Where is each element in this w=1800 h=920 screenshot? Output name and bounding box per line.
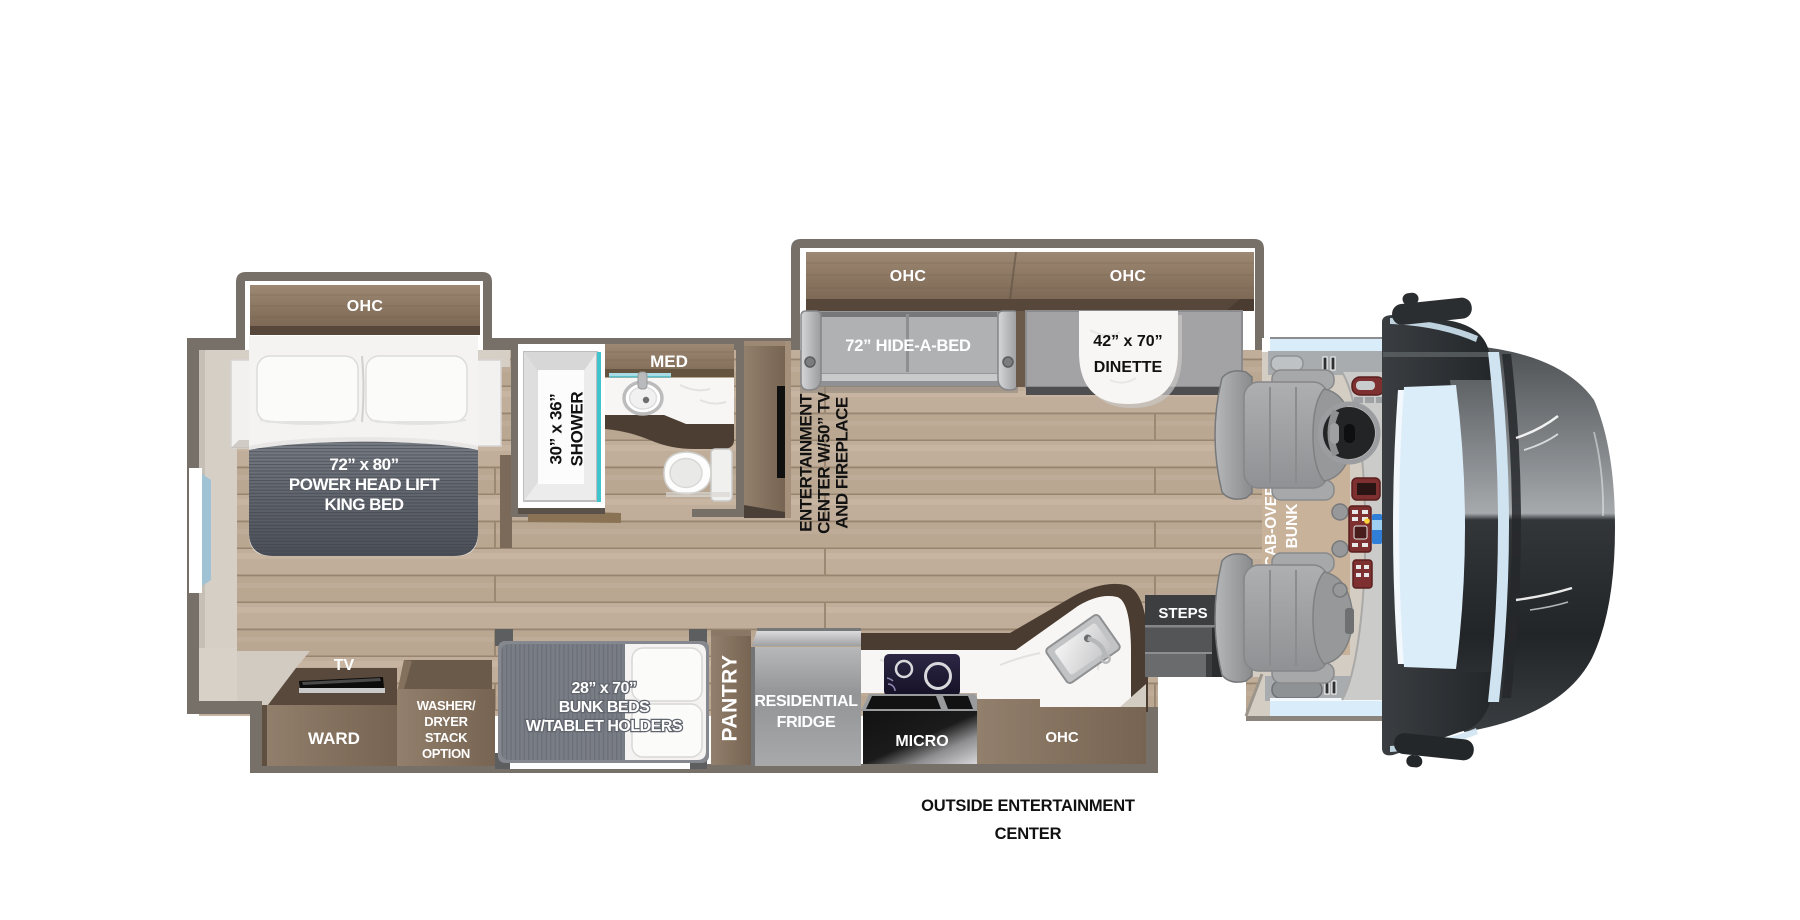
svg-text:RESIDENTIAL: RESIDENTIAL	[754, 693, 858, 710]
svg-text:WASHER/: WASHER/	[417, 698, 476, 713]
svg-text:STEPS: STEPS	[1158, 605, 1207, 622]
svg-text:CENTER: CENTER	[995, 825, 1062, 843]
svg-text:OHC: OHC	[347, 298, 384, 315]
svg-text:DRYER: DRYER	[424, 714, 468, 729]
svg-text:28” x 70”: 28” x 70”	[572, 680, 637, 697]
svg-text:OHC: OHC	[1045, 729, 1079, 746]
svg-text:BUNK BEDS: BUNK BEDS	[559, 699, 650, 716]
svg-text:OPTION: OPTION	[422, 746, 470, 761]
svg-text:DINETTE: DINETTE	[1094, 359, 1163, 376]
svg-text:PANTRY: PANTRY	[719, 655, 742, 742]
svg-text:30” x 36”: 30” x 36”	[546, 393, 565, 464]
svg-text:42” x 70”: 42” x 70”	[1093, 333, 1162, 350]
svg-text:STACK: STACK	[425, 730, 468, 745]
svg-text:W/TABLET HOLDERS: W/TABLET HOLDERS	[526, 718, 683, 735]
svg-text:MED: MED	[650, 352, 688, 371]
svg-text:CENTER W/50” TV: CENTER W/50” TV	[814, 391, 833, 534]
svg-text:KING BED: KING BED	[324, 495, 403, 514]
svg-text:72” x 80”: 72” x 80”	[329, 455, 398, 474]
svg-text:TV: TV	[334, 657, 355, 674]
svg-text:WARD: WARD	[308, 729, 360, 748]
svg-text:BUNK: BUNK	[1284, 503, 1301, 549]
svg-text:MICRO: MICRO	[895, 733, 948, 750]
svg-text:FRIDGE: FRIDGE	[777, 714, 836, 731]
svg-text:OHC: OHC	[1110, 268, 1147, 285]
svg-text:POWER HEAD LIFT: POWER HEAD LIFT	[289, 475, 440, 494]
svg-text:OUTSIDE ENTERTAINMENT: OUTSIDE ENTERTAINMENT	[921, 797, 1135, 815]
svg-text:ENTERTAINMENT: ENTERTAINMENT	[796, 393, 815, 532]
svg-text:SHOWER: SHOWER	[567, 392, 586, 467]
svg-text:OHC: OHC	[890, 268, 927, 285]
svg-text:AND FIREPLACE: AND FIREPLACE	[832, 397, 851, 529]
svg-text:72” HIDE-A-BED: 72” HIDE-A-BED	[845, 337, 971, 355]
